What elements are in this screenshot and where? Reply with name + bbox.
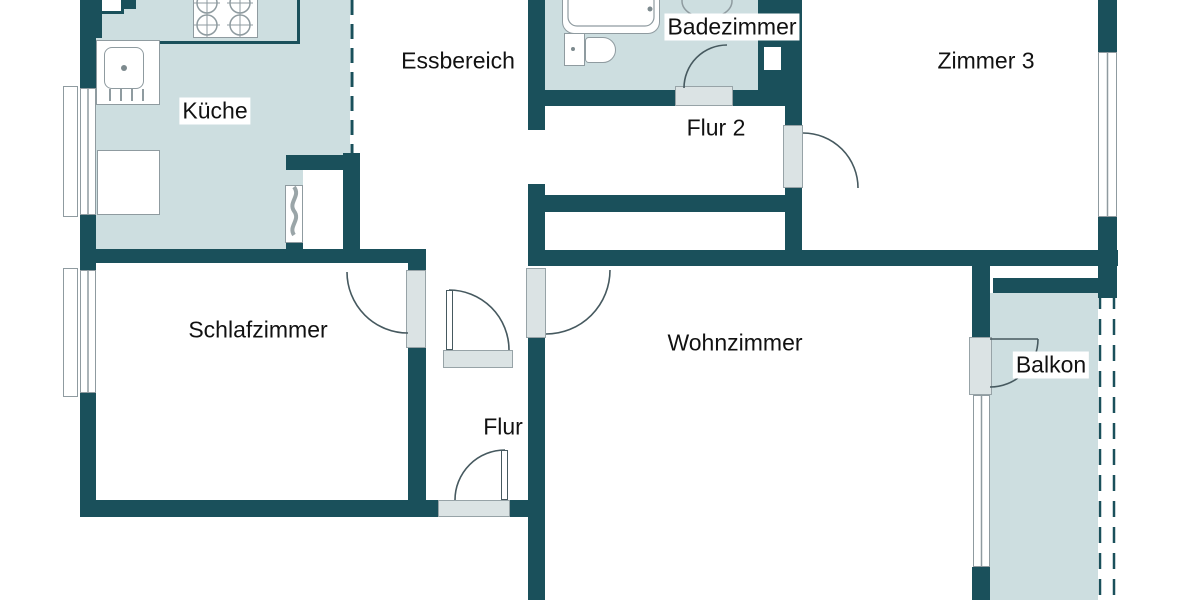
stove-burners xyxy=(194,0,253,38)
plan-annotations xyxy=(0,0,1200,600)
room-label-flur: Flur xyxy=(480,414,526,441)
door-swing-arc-dining-hall xyxy=(449,290,509,350)
door-swing-arc-bedroom xyxy=(347,272,408,333)
sink-drain xyxy=(121,65,127,71)
bathtub-drain xyxy=(648,7,653,12)
room-label-balkon: Balkon xyxy=(1013,352,1089,379)
room-label-flur-2: Flur 2 xyxy=(684,115,749,142)
toilet-flush-dot xyxy=(571,47,575,51)
room-label-wohnzimmer: Wohnzimmer xyxy=(664,330,805,357)
room-label-schlafzimmer: Schlafzimmer xyxy=(185,317,330,344)
room-label-zimmer-3: Zimmer 3 xyxy=(934,48,1037,75)
sink-drainboard-lines xyxy=(110,89,143,101)
room-label-kueche: Küche xyxy=(179,98,250,125)
bathtub-inner xyxy=(568,0,654,26)
floor-plan: Küche Essbereich Badezimmer Flur 2 Zimme… xyxy=(0,0,1200,600)
door-swing-arc-bathroom xyxy=(684,45,727,88)
chimney-squiggle xyxy=(292,187,296,235)
door-swing-arc-livingroom xyxy=(546,270,610,334)
door-swing-arc-room3 xyxy=(803,133,858,188)
room-label-badezimmer: Badezimmer xyxy=(664,14,799,41)
door-swing-arc-entrance xyxy=(455,450,505,500)
room-label-essbereich: Essbereich xyxy=(398,48,518,75)
